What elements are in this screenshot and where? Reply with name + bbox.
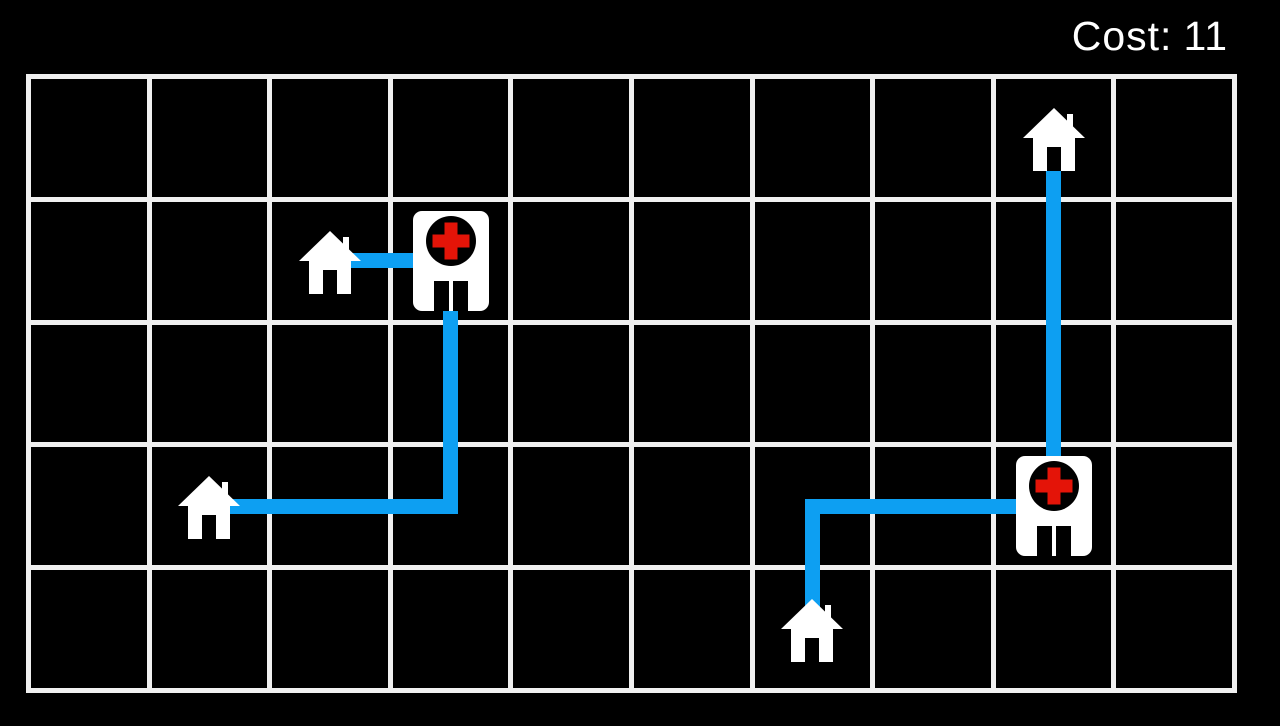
grid-cell[interactable] bbox=[272, 570, 388, 688]
grid-cell[interactable] bbox=[152, 570, 268, 688]
grid-cell[interactable] bbox=[31, 202, 147, 320]
grid-cell[interactable] bbox=[634, 570, 750, 688]
grid-cell[interactable] bbox=[634, 79, 750, 197]
grid-cell[interactable] bbox=[1116, 570, 1232, 688]
grid-cell[interactable] bbox=[31, 79, 147, 197]
grid-cell[interactable] bbox=[513, 325, 629, 443]
grid-cell[interactable] bbox=[152, 79, 268, 197]
door bbox=[1047, 147, 1061, 171]
grid-cell[interactable] bbox=[634, 447, 750, 565]
house-icon[interactable] bbox=[177, 473, 241, 539]
cost-label: Cost: bbox=[1072, 14, 1173, 59]
grid-cell[interactable] bbox=[1116, 447, 1232, 565]
hospital-icon[interactable] bbox=[413, 211, 489, 311]
grid-cell[interactable] bbox=[31, 570, 147, 688]
grid-cell[interactable] bbox=[755, 79, 871, 197]
door bbox=[202, 515, 216, 539]
grid-cell[interactable] bbox=[513, 447, 629, 565]
grid-cell[interactable] bbox=[1116, 79, 1232, 197]
house-icon[interactable] bbox=[298, 228, 362, 294]
grid-cell[interactable] bbox=[1116, 202, 1232, 320]
grid-cell[interactable] bbox=[272, 325, 388, 443]
grid-cell[interactable] bbox=[513, 202, 629, 320]
hospital-door-left bbox=[1037, 526, 1052, 556]
grid-cell[interactable] bbox=[31, 325, 147, 443]
hospital-door-right bbox=[1056, 526, 1071, 556]
house-icon[interactable] bbox=[1022, 105, 1086, 171]
grid-cell[interactable] bbox=[755, 325, 871, 443]
grid-cell[interactable] bbox=[634, 325, 750, 443]
grid-cell[interactable] bbox=[634, 202, 750, 320]
grid-cell[interactable] bbox=[513, 570, 629, 688]
grid-cell[interactable] bbox=[393, 79, 509, 197]
grid-cell[interactable] bbox=[755, 202, 871, 320]
grid-cell[interactable] bbox=[1116, 325, 1232, 443]
hospital-door-left bbox=[434, 281, 449, 311]
cost-value: 11 bbox=[1183, 14, 1228, 59]
grid-cell[interactable] bbox=[875, 79, 991, 197]
house-icon[interactable] bbox=[780, 596, 844, 662]
grid-cell[interactable] bbox=[393, 570, 509, 688]
game-stage: Cost: 11 bbox=[0, 0, 1280, 726]
grid-cell[interactable] bbox=[875, 202, 991, 320]
grid-cell[interactable] bbox=[996, 570, 1112, 688]
grid-cell[interactable] bbox=[152, 325, 268, 443]
grid-cell[interactable] bbox=[272, 79, 388, 197]
grid-cell[interactable] bbox=[513, 79, 629, 197]
grid-cell[interactable] bbox=[875, 570, 991, 688]
grid-cell[interactable] bbox=[152, 202, 268, 320]
grid-cell[interactable] bbox=[875, 325, 991, 443]
hospital-door-right bbox=[453, 281, 468, 311]
grid-cell[interactable] bbox=[31, 447, 147, 565]
hospital-icon[interactable] bbox=[1016, 456, 1092, 556]
door bbox=[323, 270, 337, 294]
door bbox=[805, 638, 819, 662]
cost-display: Cost: 11 bbox=[1072, 14, 1228, 59]
